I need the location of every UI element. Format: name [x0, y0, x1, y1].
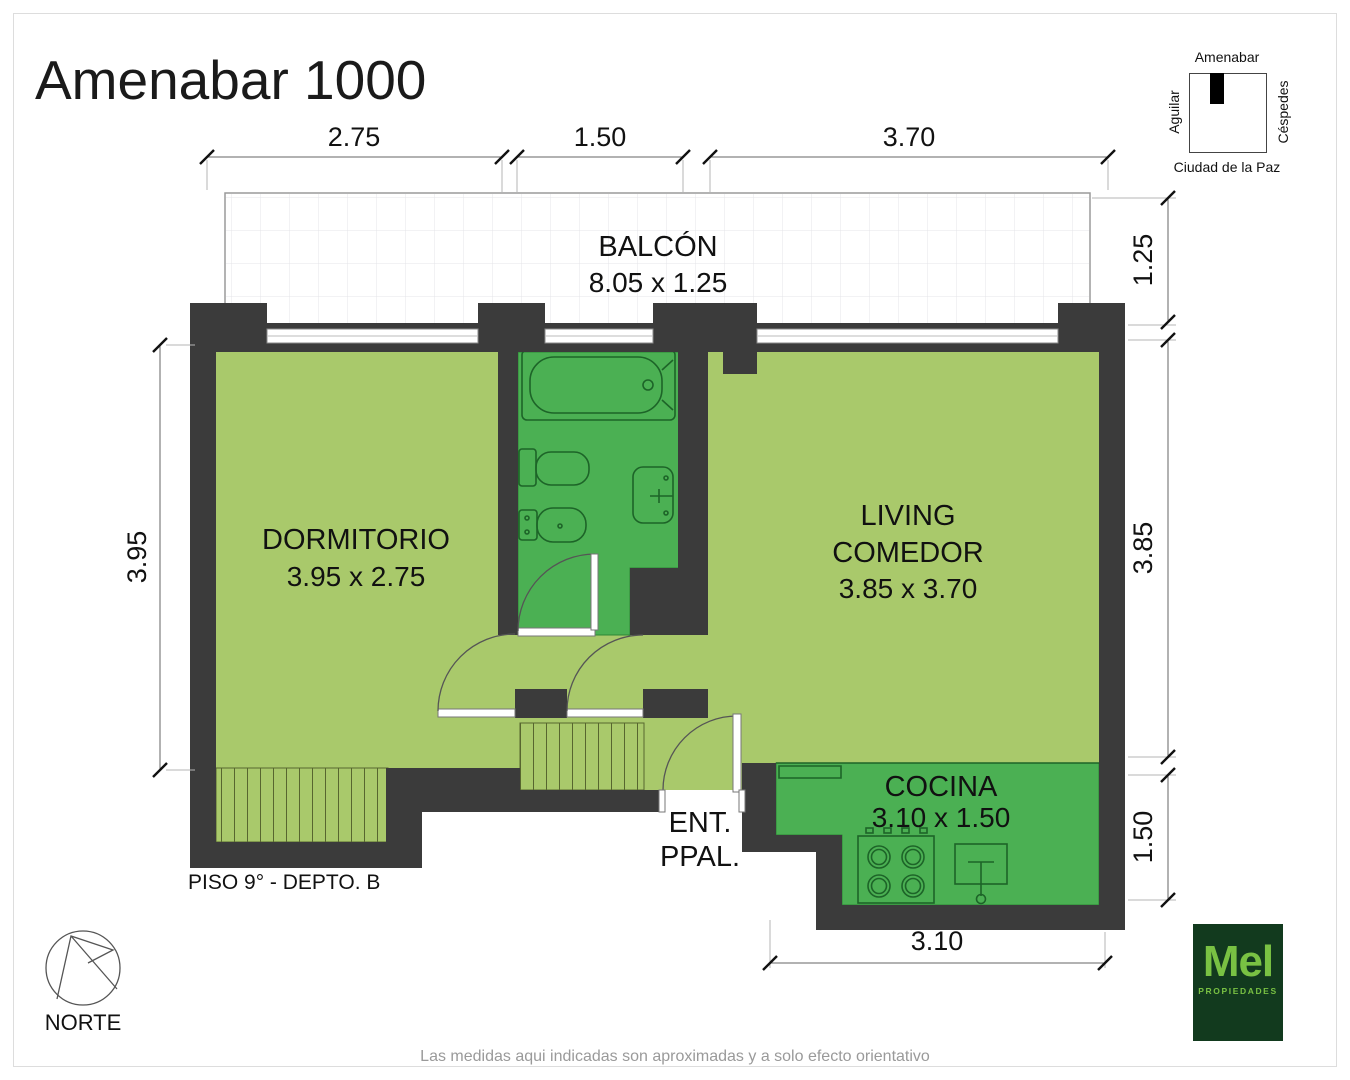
- living-label-line2: COMEDOR: [832, 537, 983, 569]
- floor-unit-label: PISO 9° - DEPTO. B: [188, 871, 380, 894]
- disclaimer-text: Las medidas aqui indicadas son aproximad…: [0, 1048, 1350, 1066]
- dim-top-1: 2.75: [328, 122, 381, 152]
- dim-top-2: 1.50: [574, 122, 627, 152]
- bedroom-closet: [216, 768, 388, 842]
- balcony-size: 8.05 x 1.25: [589, 267, 728, 298]
- entry-label-line2: PPAL.: [660, 841, 740, 873]
- living-size: 3.85 x 3.70: [839, 573, 978, 604]
- agency-logo: Mel PROPIEDADES: [1193, 924, 1283, 1041]
- living-label-line1: LIVING: [860, 500, 955, 532]
- entry-label-line1: ENT.: [669, 807, 732, 839]
- bedroom-label: DORMITORIO: [262, 524, 450, 556]
- north-compass: NORTE: [45, 931, 122, 1035]
- dim-left-1: 3.95: [122, 531, 152, 584]
- floorplan-drawing: 2.75 1.50 3.70 1.25 3.85 1.50 3.95 3.10 …: [0, 0, 1350, 1080]
- dim-top-3: 3.70: [883, 122, 936, 152]
- floorplan-page: Amenabar 1000 Amenabar Aguilar Céspedes …: [0, 0, 1350, 1080]
- north-arrow-icon: [57, 936, 117, 999]
- dim-right-3: 1.50: [1128, 811, 1158, 864]
- logo-subtitle: PROPIEDADES: [1193, 986, 1283, 996]
- dim-right-1: 1.25: [1128, 234, 1158, 287]
- logo-name: Mel: [1193, 940, 1283, 984]
- kitchen-label: COCINA: [885, 771, 998, 803]
- kitchen-size: 3.10 x 1.50: [872, 802, 1011, 833]
- balcony-label: BALCÓN: [598, 230, 717, 263]
- dim-right-2: 3.85: [1128, 522, 1158, 575]
- compass-circle: [46, 931, 120, 1005]
- compass-label: NORTE: [45, 1010, 122, 1035]
- dim-bottom-1: 3.10: [911, 926, 964, 956]
- bedroom-size: 3.95 x 2.75: [287, 561, 426, 592]
- entry-closet: [520, 723, 644, 790]
